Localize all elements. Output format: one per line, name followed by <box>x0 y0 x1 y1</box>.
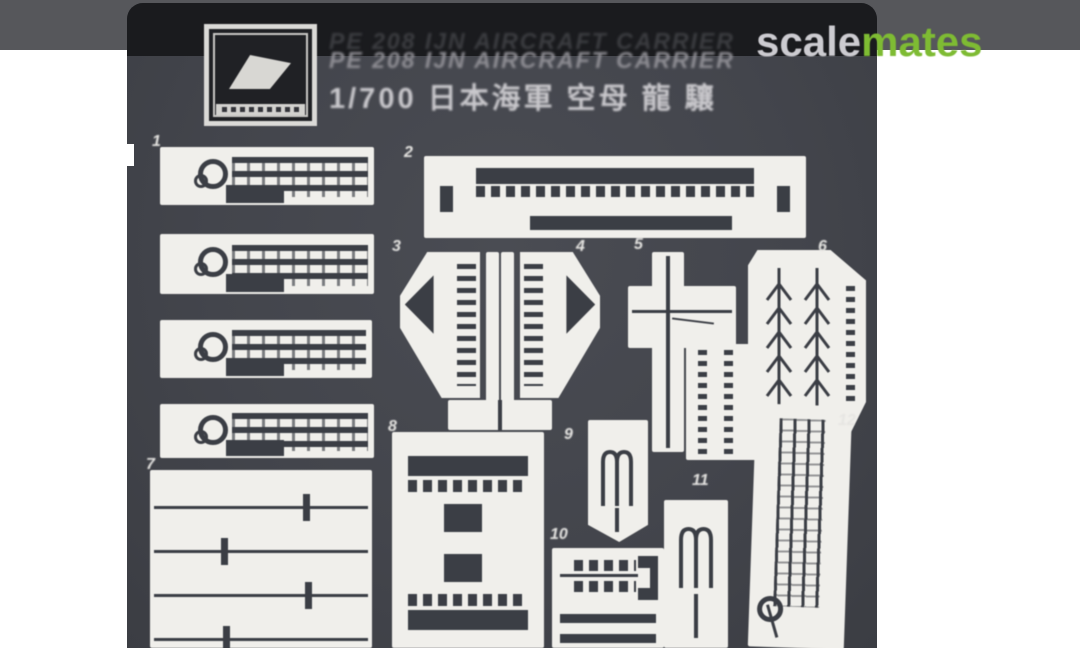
etch-detail <box>408 456 528 476</box>
etch-detail <box>615 508 619 532</box>
part-number-label: 1 <box>152 133 161 151</box>
etched-part-12 <box>748 403 852 648</box>
etched-part-1-strip <box>160 404 374 458</box>
part-number-label: 7 <box>146 456 155 474</box>
etch-detail <box>405 275 434 333</box>
part-number-label: 11 <box>692 472 709 490</box>
davit-line <box>154 594 368 597</box>
etch-detail <box>226 185 284 203</box>
etched-part-7 <box>150 470 372 648</box>
slot-row <box>574 560 636 571</box>
etched-part-1-strip <box>160 234 374 294</box>
etched-part-10 <box>552 548 664 648</box>
etch-detail <box>777 186 790 212</box>
mast-line <box>666 256 670 448</box>
etched-part-1-strip <box>160 320 372 378</box>
ladder-pattern <box>457 264 476 387</box>
scalemates-watermark: scalemates <box>756 18 983 66</box>
part-number-label: 6 <box>818 238 827 256</box>
etched-parts-layer: 1 2 3 4 5 6 7 8 9 10 11 12 <box>0 0 1080 648</box>
davit-line <box>154 550 368 553</box>
fret-edge-notch <box>120 144 134 166</box>
etch-detail <box>440 186 453 212</box>
davit-loop-icon <box>596 446 638 508</box>
davit-loop-icon <box>673 522 719 590</box>
etch-detail <box>444 554 482 582</box>
product-photo-page: PE 208 IJN AIRCRAFT CARRIER PE 208 IJN A… <box>0 0 1080 648</box>
etch-detail <box>476 168 754 184</box>
etch-detail <box>226 440 284 456</box>
slot-row <box>574 581 636 592</box>
part-number-label: 5 <box>634 236 643 254</box>
perforated-strip <box>846 286 855 404</box>
coil-icon <box>198 415 228 445</box>
etch-detail <box>226 358 284 376</box>
fir-tree-antenna-icon <box>800 264 834 424</box>
etch-detail <box>530 216 732 230</box>
etched-part-8 <box>392 432 544 648</box>
etched-part-11 <box>664 500 728 648</box>
part-number-label: 2 <box>404 144 413 162</box>
coil-icon <box>198 332 228 362</box>
etched-part-1-strip <box>160 147 374 205</box>
ladder-rails <box>773 418 826 607</box>
etched-part-4 <box>520 252 600 398</box>
part-number-label: 8 <box>388 418 397 436</box>
davit-line <box>154 638 368 641</box>
etch-detail <box>694 594 698 638</box>
slot-row <box>408 594 528 606</box>
coil-icon <box>198 247 228 277</box>
etch-detail <box>223 626 230 648</box>
slot-row <box>408 480 528 492</box>
part-number-label: 9 <box>564 426 573 444</box>
part-number-label: 4 <box>576 238 585 256</box>
ladder-pattern <box>524 264 543 387</box>
etched-part-3 <box>400 252 480 398</box>
column-feet <box>448 400 552 430</box>
part-number-label: 10 <box>550 526 568 544</box>
fir-tree-antenna-icon <box>762 264 796 424</box>
etch-detail <box>498 400 502 430</box>
etched-part-2 <box>424 156 806 238</box>
watermark-text-green: mates <box>861 18 982 65</box>
etch-detail <box>303 494 310 521</box>
davit-line <box>154 506 368 509</box>
bracket-notch <box>638 568 650 588</box>
yard-plate <box>628 286 736 348</box>
perforated-strip <box>698 350 707 454</box>
etch-detail <box>560 634 656 643</box>
part-number-label: 3 <box>392 238 401 256</box>
stanchion-teeth <box>476 186 754 197</box>
perforated-strip <box>724 350 733 454</box>
part-number-label: 12 <box>838 412 856 430</box>
yard-line <box>632 310 732 313</box>
etch-detail <box>408 610 528 630</box>
etch-detail <box>560 614 656 623</box>
etch-detail <box>444 504 482 532</box>
etch-detail <box>566 275 595 333</box>
etch-detail <box>221 538 228 565</box>
etched-part-3-4-group <box>400 250 600 432</box>
etch-detail <box>305 582 312 609</box>
watermark-text-gray: scale <box>756 18 861 65</box>
coil-icon <box>198 159 228 189</box>
etch-detail <box>226 274 284 292</box>
etched-part-9 <box>588 420 648 542</box>
